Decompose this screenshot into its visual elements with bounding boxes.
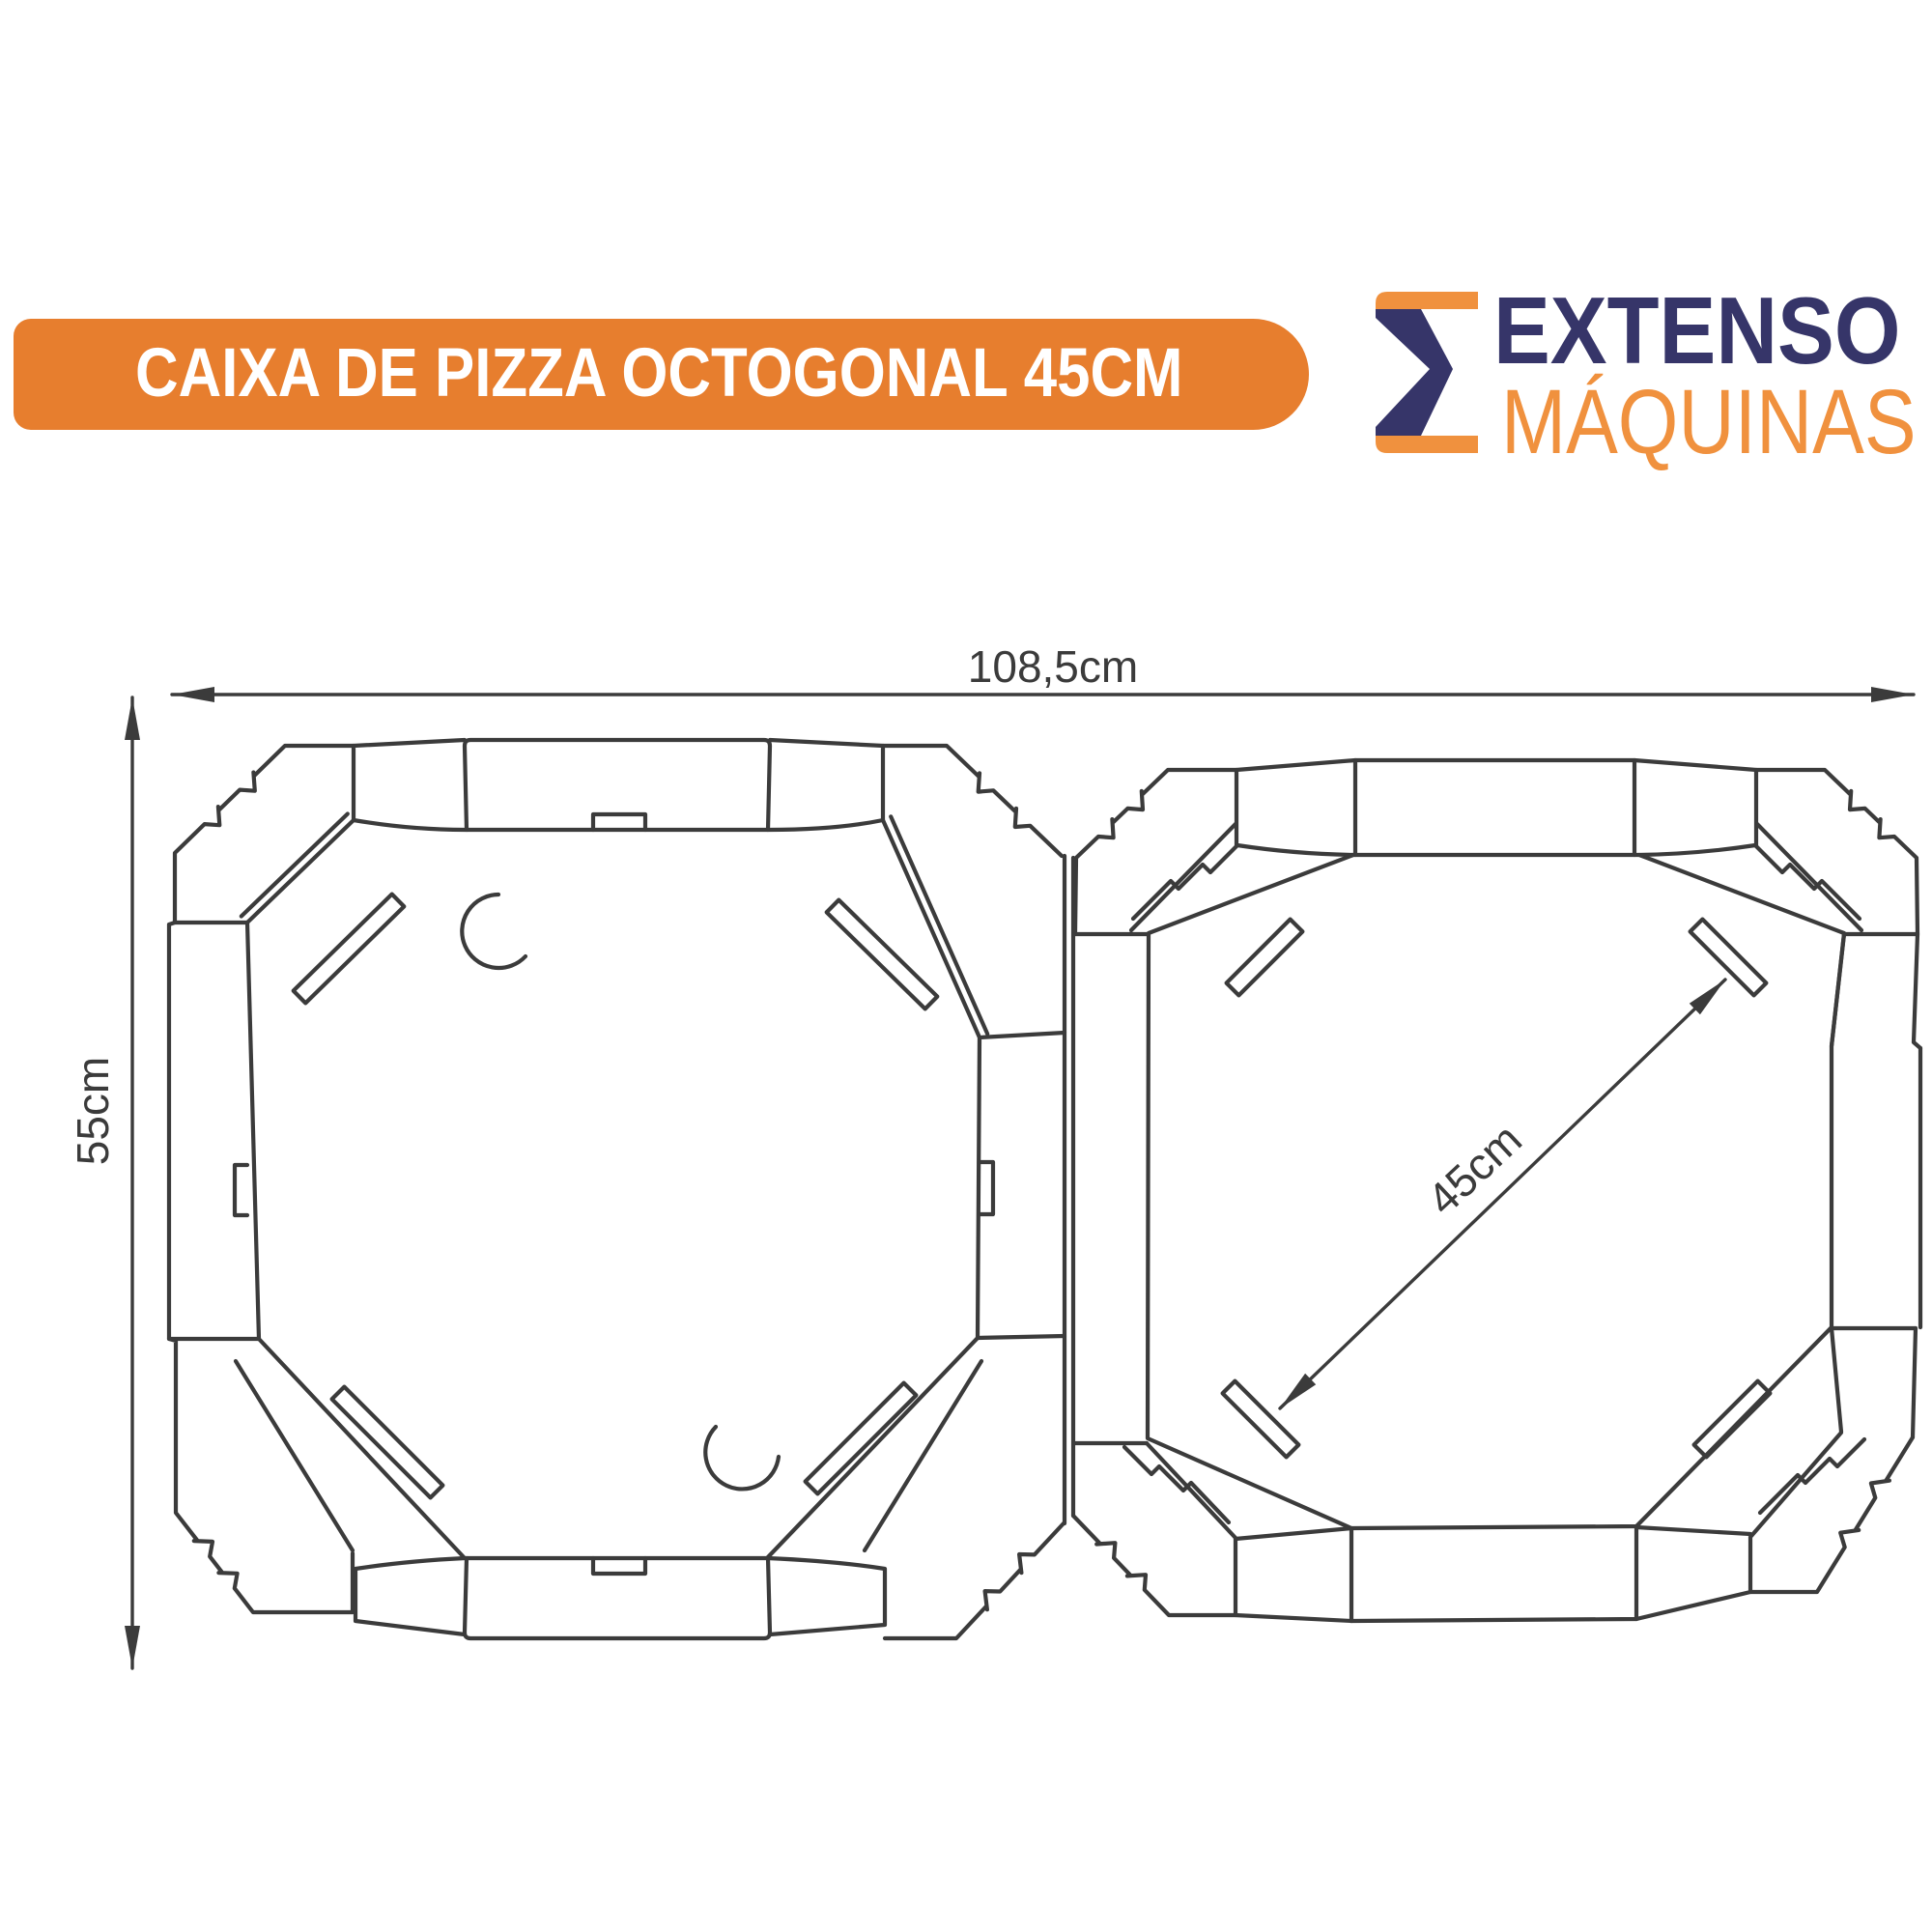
svg-text:MÁQUINAS: MÁQUINAS	[1501, 370, 1917, 473]
svg-text:108,5cm: 108,5cm	[968, 641, 1138, 692]
svg-text:EXTENSO: EXTENSO	[1493, 278, 1900, 384]
svg-text:55cm: 55cm	[68, 1057, 118, 1165]
svg-text:45cm: 45cm	[1417, 1114, 1531, 1225]
